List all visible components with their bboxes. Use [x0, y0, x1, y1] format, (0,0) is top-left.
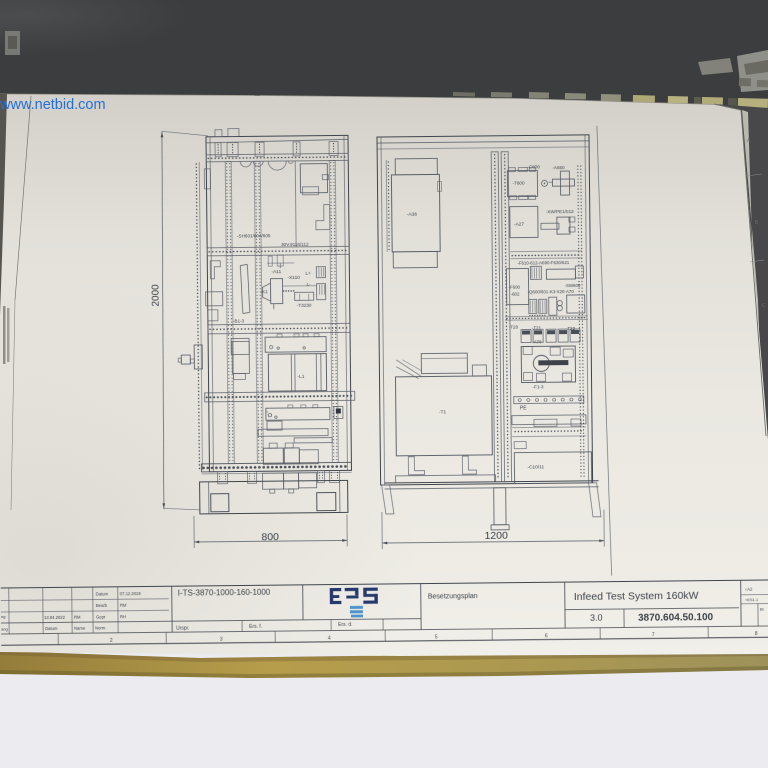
svg-text:4: 4: [328, 635, 331, 641]
svg-text:=A2: =A2: [745, 587, 753, 592]
svg-text:30V.9116/112: 30V.9116/112: [281, 242, 309, 247]
svg-text:Bl.: Bl.: [760, 607, 765, 612]
svg-text:7: 7: [652, 632, 655, 638]
svg-text:Infeed Test System 160kW: Infeed Test System 160kW: [574, 590, 699, 603]
svg-text:Urspr.: Urspr.: [176, 626, 189, 632]
svg-text:3: 3: [220, 636, 223, 642]
svg-text:-F610-612-A690-F630/621: -F610-612-A690-F630/621: [517, 260, 570, 266]
svg-text:-C10/11: -C10/11: [527, 464, 544, 470]
svg-text:07.12.2019: 07.12.2019: [120, 591, 142, 596]
svg-text:Besetzungsplan: Besetzungsplan: [428, 593, 478, 601]
svg-text:-A27: -A27: [514, 222, 525, 228]
svg-text:5: 5: [435, 634, 438, 640]
svg-text:ng: ng: [1, 614, 6, 619]
svg-text:-K1: -K1: [261, 289, 269, 294]
svg-text:Norm: Norm: [95, 625, 106, 630]
svg-text:-A70: -A70: [532, 339, 542, 344]
svg-text:-F600: -F600: [509, 285, 521, 290]
svg-text:Bearb: Bearb: [96, 603, 108, 608]
svg-text:-X110: -X110: [287, 275, 300, 281]
svg-text:Ers. f.: Ers. f.: [249, 624, 262, 630]
svg-text:RH: RH: [120, 614, 126, 619]
svg-text:-SW600: -SW600: [565, 283, 581, 288]
svg-text:-A36: -A36: [407, 212, 418, 218]
svg-text:-T20: -T20: [509, 325, 519, 330]
svg-text:Name: Name: [74, 626, 86, 631]
svg-text:-F1-3: -F1-3: [533, 384, 544, 389]
svg-text:-B1-3: -B1-3: [233, 318, 245, 323]
svg-text:PE: PE: [520, 405, 527, 411]
svg-text:2000: 2000: [151, 284, 162, 307]
svg-text:6: 6: [545, 633, 548, 639]
svg-text:-602: -602: [511, 292, 520, 297]
svg-text:L-: L-: [307, 282, 312, 288]
svg-text:Datum: Datum: [96, 591, 109, 596]
svg-text:Datum: Datum: [45, 626, 58, 631]
svg-text:Gepr: Gepr: [96, 614, 106, 619]
svg-text:C: C: [762, 303, 766, 309]
svg-text:3.0: 3.0: [590, 613, 603, 623]
svg-text:-T1: -T1: [439, 409, 447, 415]
svg-text:-L1: -L1: [297, 374, 304, 380]
svg-text:-A660: -A660: [552, 165, 565, 170]
svg-text:1200: 1200: [484, 530, 508, 542]
svg-text:13.04.2022: 13.04.2022: [44, 615, 66, 620]
svg-text:-A11: -A11: [271, 269, 281, 275]
svg-text:-T3230: -T3230: [297, 303, 312, 308]
svg-text:RM: RM: [74, 615, 81, 620]
svg-text:I-TS-3870-1000-160-1000: I-TS-3870-1000-160-1000: [178, 588, 271, 598]
svg-text:8: 8: [755, 631, 758, 637]
svg-text:RM: RM: [120, 603, 127, 608]
svg-text:+ES1.1: +ES1.1: [745, 597, 759, 602]
svg-text:3870.604.50.100: 3870.604.50.100: [638, 612, 714, 624]
svg-text:ang: ang: [1, 626, 8, 631]
svg-text:-Q600/601-K3-X20-A70: -Q600/601-K3-X20-A70: [528, 289, 575, 294]
svg-text:www.netbid.com: www.netbid.com: [0, 97, 106, 113]
svg-text:L+: L+: [305, 271, 311, 277]
svg-text:2: 2: [110, 638, 113, 644]
svg-text:Ers. d.: Ers. d.: [338, 622, 353, 628]
svg-text:-XW/PE1/013: -XW/PE1/013: [546, 209, 574, 214]
svg-text:-T600: -T600: [512, 181, 524, 186]
svg-text:-SH601/604/605: -SH601/604/605: [237, 233, 271, 238]
